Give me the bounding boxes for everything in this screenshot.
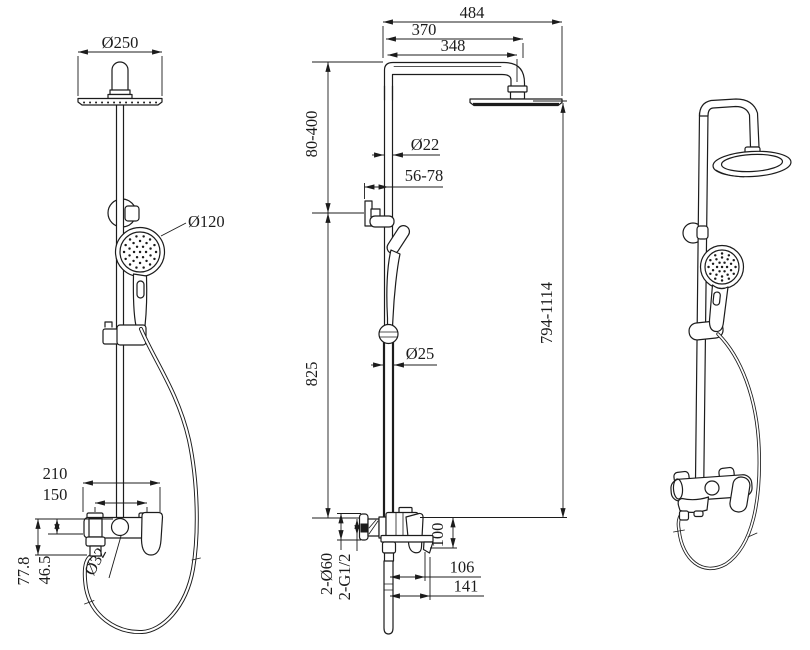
shower-arm	[700, 99, 761, 156]
dim-overall-reach: 484	[383, 3, 562, 96]
shower-system-drawing: Ø250 Ø120 210 150 46.5 77.8	[0, 0, 810, 650]
side-dimensions: 484 370 348 80-400 825	[302, 3, 567, 600]
dim-overall-height-range: 794-1114	[420, 101, 567, 518]
dim-label: 56-78	[405, 166, 444, 185]
dim-label: 825	[302, 362, 321, 387]
dim-label: Ø25	[406, 344, 434, 363]
dim-label: 348	[441, 36, 466, 55]
hand-shower-handle	[133, 274, 146, 326]
shower-rail	[696, 113, 709, 480]
dim-label: Ø22	[411, 135, 439, 154]
bracket-clamp	[697, 226, 708, 239]
mixer-valve	[670, 467, 752, 520]
shower-hose	[384, 561, 393, 634]
dim-label: 2-G1/2	[335, 554, 354, 601]
dim-label: Ø120	[188, 212, 225, 231]
rain-head	[470, 99, 562, 106]
bracket-clamp	[125, 206, 139, 221]
rain-head	[712, 149, 791, 178]
valve-handle	[406, 513, 423, 552]
dim-inlet-threads: 2-G1/2	[335, 519, 357, 600]
slide-holder-knob	[379, 325, 398, 344]
hose-outlet	[385, 553, 394, 561]
dim-inlet-center-spacing: 150	[43, 485, 147, 512]
technical-drawing-page: Ø250 Ø120 210 150 46.5 77.8	[0, 0, 810, 650]
shower-arm	[385, 63, 528, 101]
hand-shower	[701, 246, 744, 332]
dim-label: 2-Ø60	[317, 553, 336, 595]
rain-head	[78, 62, 162, 105]
dim-label: 46.5	[35, 556, 54, 585]
dim-label: 77.8	[14, 557, 33, 586]
dim-label: 484	[460, 3, 485, 22]
dim-hand-shower-diameter: Ø120	[161, 212, 225, 236]
slide-holder	[103, 322, 146, 345]
dim-label: 106	[450, 558, 475, 577]
dim-label: 794-1114	[537, 282, 556, 344]
shower-rail	[117, 104, 124, 517]
dim-rain-head-diameter: Ø250	[78, 33, 162, 96]
perspective-view	[670, 99, 791, 568]
hose-outlet	[680, 511, 689, 520]
dim-wall-to-pipe-range: 56-78	[365, 166, 444, 199]
dim-label: 150	[43, 485, 68, 504]
hose-fittings	[674, 530, 758, 537]
valve-handle	[142, 513, 163, 556]
dim-upper-pipe-diameter: Ø22	[372, 135, 440, 155]
side-view: 484 370 348 80-400 825	[302, 3, 567, 634]
shower-hose	[674, 334, 760, 568]
mixer-valve	[360, 508, 434, 635]
spout	[678, 497, 708, 512]
dim-label: 370	[412, 20, 437, 39]
dim-lower-pipe-diameter: Ø25	[371, 344, 437, 365]
dim-head-to-bracket-range: 80-400	[302, 62, 383, 213]
dim-label: Ø250	[102, 33, 139, 52]
shower-hose	[85, 329, 201, 632]
dim-label: 100	[428, 523, 447, 548]
dim-label: 141	[454, 577, 479, 596]
dim-label: 210	[43, 464, 68, 483]
front-view: Ø250 Ø120 210 150 46.5 77.8	[14, 33, 225, 632]
dim-bracket-to-valve: 825	[302, 213, 360, 518]
diverter-knob	[705, 481, 719, 495]
dim-label: 80-400	[302, 111, 321, 158]
spout	[383, 542, 396, 553]
diverter-knob	[112, 519, 129, 536]
dim-valve-height: 100	[428, 518, 457, 549]
